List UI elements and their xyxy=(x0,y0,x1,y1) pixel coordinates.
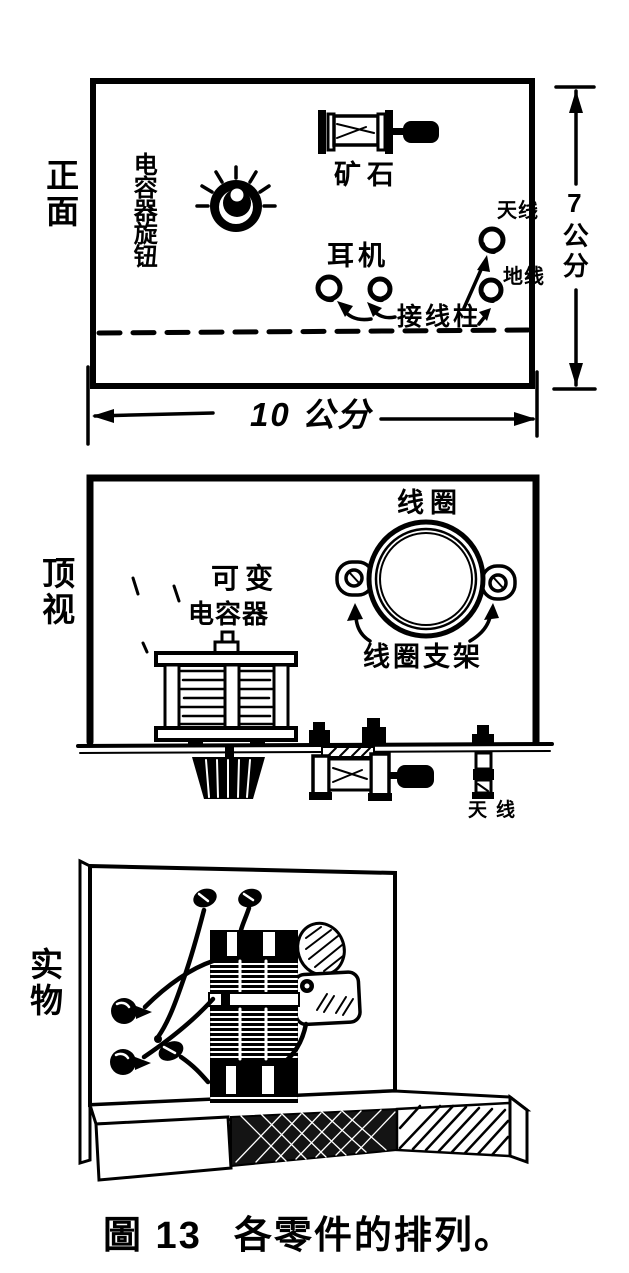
figure-title: 各零件的排列。 xyxy=(234,1204,514,1259)
crystal-detector xyxy=(318,110,439,154)
variable-capacitor-label-1: 可变 xyxy=(211,564,279,593)
capacitor-foot xyxy=(250,740,265,747)
crystal-label: 矿石 xyxy=(334,161,400,189)
base-front-left xyxy=(96,1117,231,1180)
front-panel-outline xyxy=(93,81,532,386)
crystal-detector-under xyxy=(309,718,434,801)
arrowhead xyxy=(347,603,363,621)
tuning-knob xyxy=(210,180,262,232)
antenna-label-bottom: 天线 xyxy=(468,801,524,821)
height-dimension-label: 7公分 xyxy=(560,188,587,282)
earphone-label: 耳机 xyxy=(327,242,389,270)
figure-caption: 圖 13 各零件的排列。 xyxy=(103,1204,514,1259)
physical-view-side-label: 实物 xyxy=(26,947,61,1019)
top-view-side-label: 顶视 xyxy=(38,556,73,628)
variable-capacitor xyxy=(156,632,296,740)
binding-post-label: 接线柱 xyxy=(397,304,481,330)
ground-label: 地线 xyxy=(503,267,545,288)
stray-marks xyxy=(133,578,179,652)
base-end-cap xyxy=(510,1097,527,1162)
dim-arrow-down xyxy=(569,363,583,386)
figure-number: 圖 13 xyxy=(103,1204,202,1259)
figure-artwork xyxy=(0,0,629,1273)
dim-arrow-left xyxy=(92,409,114,423)
coil-label: 线圈 xyxy=(397,489,463,517)
coil-bracket-label: 线圈支架 xyxy=(363,643,483,671)
arrowhead xyxy=(484,603,499,620)
capacitor-knob-label: 电容器旋钮 xyxy=(130,152,155,267)
capacitor-foot xyxy=(188,740,203,747)
width-dimension-label: 10 公分 xyxy=(250,398,372,433)
dim-arrow-right xyxy=(514,412,536,426)
coil-cylinder xyxy=(209,930,299,1103)
physical-view-drawing xyxy=(80,861,527,1180)
capacitor-shaft xyxy=(225,747,234,758)
antenna-label: 天线 xyxy=(497,201,539,222)
coil-ring xyxy=(369,522,483,636)
variable-capacitor-label-2: 电容器 xyxy=(188,601,269,628)
scanned-figure-page: 正面 电容器旋钮 矿石 耳机 天线 地线 接线柱 7公分 10 公分 顶视 线圈… xyxy=(0,0,629,1273)
antenna-post xyxy=(472,725,494,799)
earphone-terminals xyxy=(318,277,390,299)
dim-arrow-up xyxy=(569,90,583,113)
label-card xyxy=(294,972,361,1025)
wire-end xyxy=(154,1035,162,1043)
front-view-side-label: 正面 xyxy=(42,158,77,230)
top-view-drawing xyxy=(78,478,552,801)
